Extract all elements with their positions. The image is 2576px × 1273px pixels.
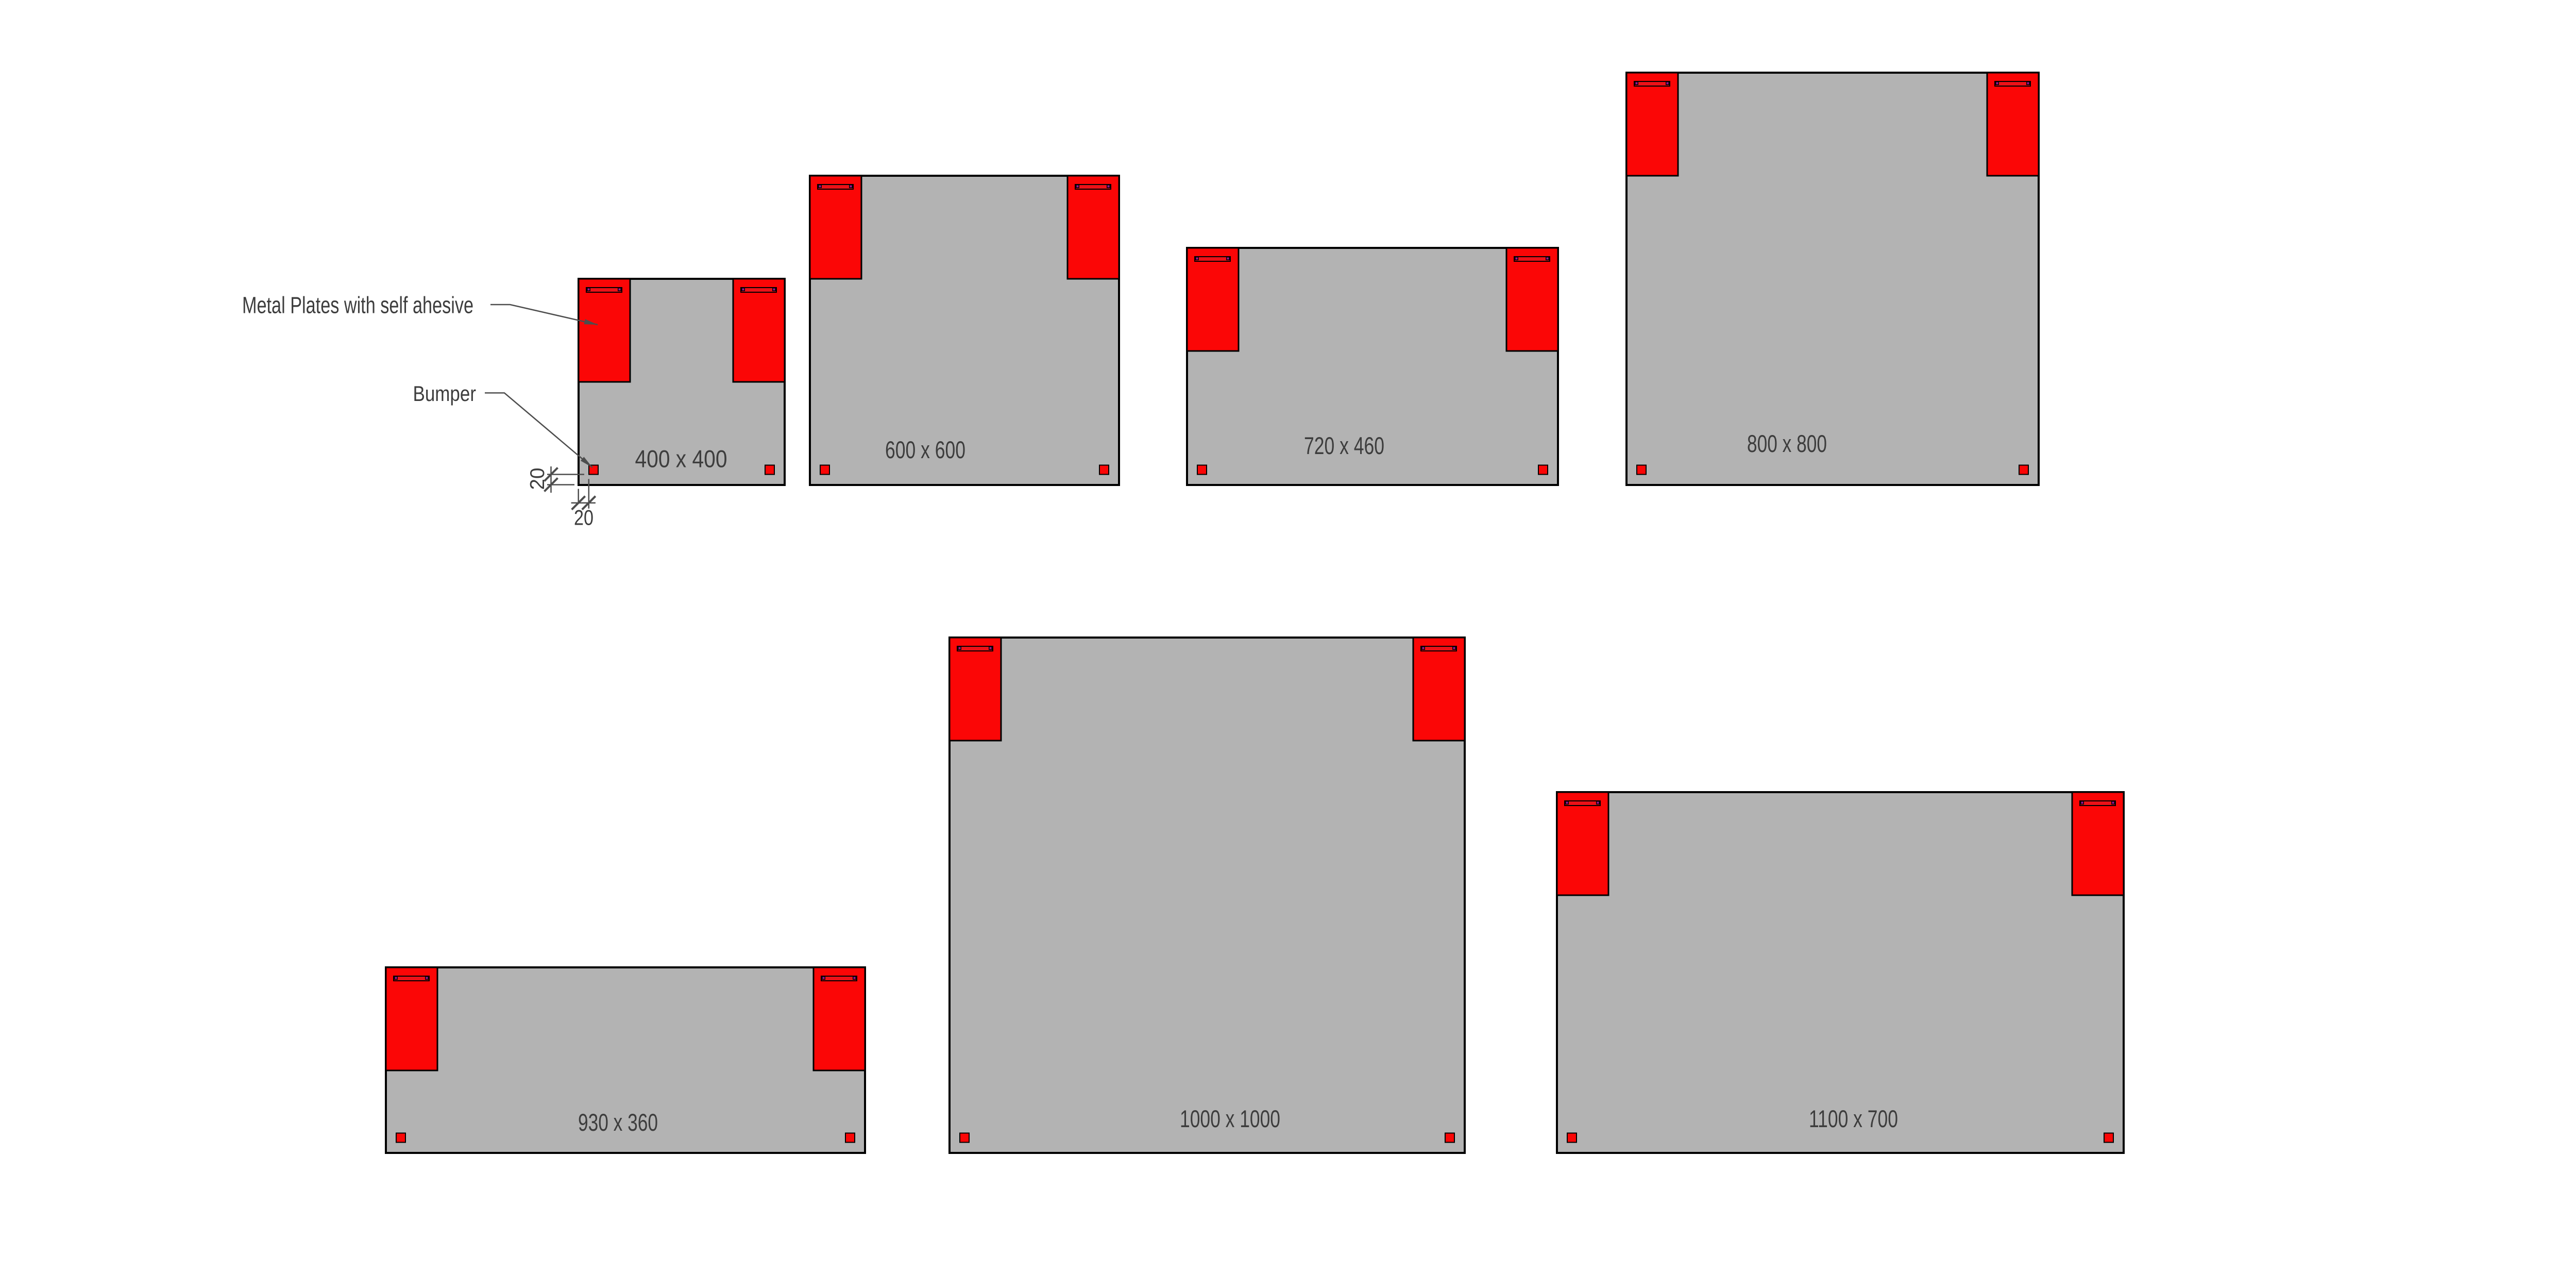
- svg-text:20: 20: [527, 468, 549, 490]
- svg-text:20: 20: [574, 506, 594, 530]
- svg-text:930 x 360: 930 x 360: [578, 1109, 658, 1136]
- svg-text:Metal Plates with self ahesive: Metal Plates with self ahesive: [242, 292, 473, 319]
- svg-text:Bumper: Bumper: [413, 381, 477, 406]
- svg-text:800 x 800: 800 x 800: [1747, 430, 1827, 457]
- svg-text:400 x 400: 400 x 400: [635, 445, 727, 473]
- svg-text:1000 x 1000: 1000 x 1000: [1180, 1105, 1280, 1132]
- svg-text:1100 x 700: 1100 x 700: [1809, 1105, 1898, 1132]
- svg-text:720 x 460: 720 x 460: [1304, 432, 1384, 459]
- svg-text:600 x 600: 600 x 600: [885, 436, 965, 463]
